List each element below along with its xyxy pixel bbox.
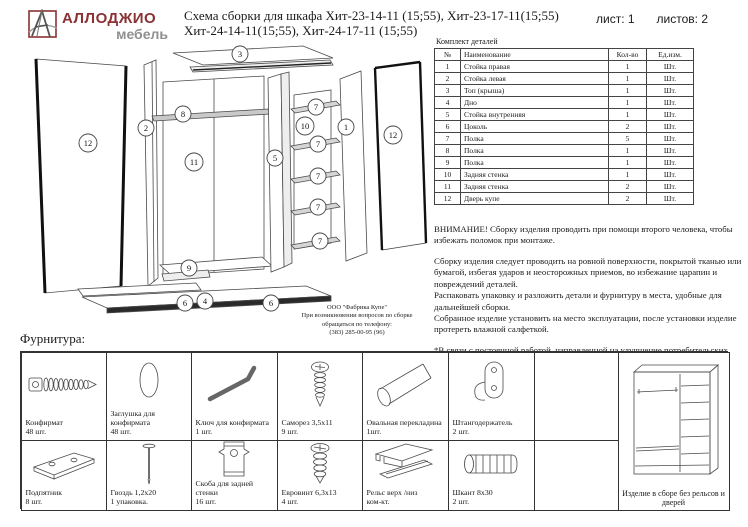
- part-left-door: [36, 59, 126, 293]
- table-row: 7Полка5Шт.: [435, 133, 694, 145]
- svg-text:6: 6: [183, 298, 187, 308]
- svg-text:2: 2: [144, 123, 148, 133]
- svg-text:7: 7: [316, 202, 320, 212]
- table-row: 11Задняя стенка2Шт.: [435, 181, 694, 193]
- svg-text:12: 12: [389, 130, 398, 140]
- hardware-item: Евровинт 6,3х134 шт.: [277, 440, 363, 511]
- callout-12-right: 12: [384, 126, 402, 144]
- callout-7: 7: [310, 136, 326, 152]
- callout-9: 9: [181, 260, 197, 276]
- svg-text:7: 7: [316, 171, 320, 181]
- exploded-assembly-diagram: 3 8 2 12 11 5 7 10 1 12 7 7 7 7 9 6 4 6: [0, 45, 435, 345]
- dowel-icon: [454, 444, 528, 484]
- table-row: 6Цоколь2Шт.: [435, 121, 694, 133]
- svg-text:7: 7: [318, 236, 322, 246]
- table-row: 2Стойка левая1Шт.: [435, 73, 694, 85]
- screw-cap-icon: [111, 358, 187, 402]
- svg-text:10: 10: [301, 121, 310, 131]
- callout-1: 1: [338, 119, 354, 135]
- hardware-item-empty: [534, 352, 619, 441]
- callout-4: 4: [197, 293, 213, 309]
- brand-logo-icon: [27, 9, 59, 39]
- part-right-door: [375, 62, 426, 250]
- nail-icon: [129, 441, 169, 487]
- page-title-line1: Схема сборки для шкафа Хит-23-14-11 (15;…: [184, 8, 559, 23]
- part-right-stand: [340, 71, 367, 261]
- rod-holder-icon: [461, 358, 521, 412]
- table-row: 5Стойка внутренняя1Шт.: [435, 109, 694, 121]
- assembled-product-cell: Изделие в сборе без рельсов и дверей: [618, 352, 730, 511]
- callout-6: 6: [177, 295, 193, 311]
- hardware-item-empty: [534, 440, 619, 511]
- table-row: 1Стойка правая1Шт.: [435, 61, 694, 73]
- page-title: Схема сборки для шкафа Хит-23-14-11 (15;…: [184, 8, 559, 39]
- hex-key-icon: [196, 363, 272, 407]
- hardware-item: Подпятник8 шт.: [21, 440, 107, 511]
- callout-7: 7: [310, 168, 326, 184]
- sheet-info: лист: 1 листов: 2: [596, 12, 708, 26]
- hardware-item: Ключ для конфирмата1 шт.: [191, 352, 278, 441]
- svg-text:7: 7: [316, 139, 320, 149]
- hardware-item: Рельс верх /низком-кт.: [362, 440, 449, 511]
- brand-name: АЛЛОДЖИО: [62, 11, 168, 27]
- callout-7: 7: [308, 99, 324, 115]
- parts-table-header: № Наименование Кол-во Ед.изм.: [435, 49, 694, 61]
- brand-subtitle: мебель: [62, 27, 168, 42]
- factory-note: ООО "Фабрика Купе" При возникновении воп…: [252, 304, 462, 338]
- svg-text:11: 11: [190, 157, 198, 167]
- svg-text:5: 5: [273, 153, 277, 163]
- table-row: 12Дверь купе2Шт.: [435, 193, 694, 205]
- svg-text:9: 9: [187, 263, 191, 273]
- svg-text:3: 3: [238, 49, 242, 59]
- callout-8: 8: [175, 106, 191, 122]
- note-paragraph: Сборку изделия следует проводить на ровн…: [434, 256, 746, 290]
- parts-table: № Наименование Кол-во Ед.изм. 1Стойка пр…: [434, 48, 694, 205]
- assembled-wardrobe-drawing: [622, 360, 726, 482]
- callout-3: 3: [232, 46, 248, 62]
- part-back-panel-large: [163, 76, 264, 276]
- callout-7: 7: [312, 233, 328, 249]
- hardware-section-title: Фурнитура:: [20, 331, 85, 347]
- parts-list: Комплект деталей № Наименование Кол-во Е…: [434, 37, 696, 205]
- table-row: 10Задняя стенка1Шт.: [435, 169, 694, 181]
- foot-plate-icon: [26, 443, 102, 485]
- svg-text:12: 12: [84, 138, 93, 148]
- assembled-caption: Изделие в сборе без рельсов и дверей: [619, 489, 729, 510]
- callout-10: 10: [296, 117, 314, 135]
- euro-screw-icon: [292, 441, 348, 487]
- part-left-stand: [144, 60, 158, 286]
- warning-text: ВНИМАНИЕ! Сборку изделия проводить при п…: [434, 224, 746, 247]
- hardware-item: Скоба для задней стенки16 шт.: [191, 440, 278, 511]
- callout-11: 11: [185, 153, 203, 171]
- hardware-item: Заглушка для конфирмата48 шт.: [106, 352, 192, 441]
- svg-text:8: 8: [181, 109, 185, 119]
- table-row: 8Полка1Шт.: [435, 145, 694, 157]
- table-row: 3Топ (крыша)1Шт.: [435, 85, 694, 97]
- svg-text:1: 1: [344, 122, 348, 132]
- hardware-item: Шкант 8х302 шт.: [448, 440, 535, 511]
- hardware-table: Конфирмат48 шт. Заглушка для конфирмата4…: [20, 351, 728, 509]
- table-row: 9Полка1Шт.: [435, 157, 694, 169]
- back-panel-clip-icon: [209, 441, 259, 478]
- hardware-item: Конфирмат48 шт.: [21, 352, 107, 441]
- hardware-item: Штангодержатель2 шт.: [448, 352, 535, 441]
- sheet-number: лист: 1: [596, 12, 635, 26]
- oval-rod-icon: [367, 359, 443, 411]
- callout-12-left: 12: [79, 134, 97, 152]
- callout-5: 5: [267, 150, 283, 166]
- hardware-item: Гвоздь 1,2х201 упаковка.: [106, 440, 192, 511]
- callout-2: 2: [138, 120, 154, 136]
- note-paragraph: Собранное изделие установить на место эк…: [434, 313, 746, 336]
- table-row: 4Дно1Шт.: [435, 97, 694, 109]
- callout-7: 7: [310, 199, 326, 215]
- svg-text:7: 7: [314, 102, 318, 112]
- sheets-total: листов: 2: [657, 12, 708, 26]
- rail-icon: [366, 441, 444, 488]
- hardware-item: Овальная перекладина1шт.: [362, 352, 449, 441]
- parts-list-title: Комплект деталей: [436, 37, 696, 46]
- hardware-item: Саморез 3,5х119 шт.: [277, 352, 363, 441]
- brand-block: АЛЛОДЖИО мебель: [62, 11, 168, 41]
- confirmat-screw-icon: [26, 365, 102, 405]
- self-tapping-screw-icon: [290, 360, 350, 410]
- note-paragraph: Распаковать упаковку и разложить детали …: [434, 290, 746, 313]
